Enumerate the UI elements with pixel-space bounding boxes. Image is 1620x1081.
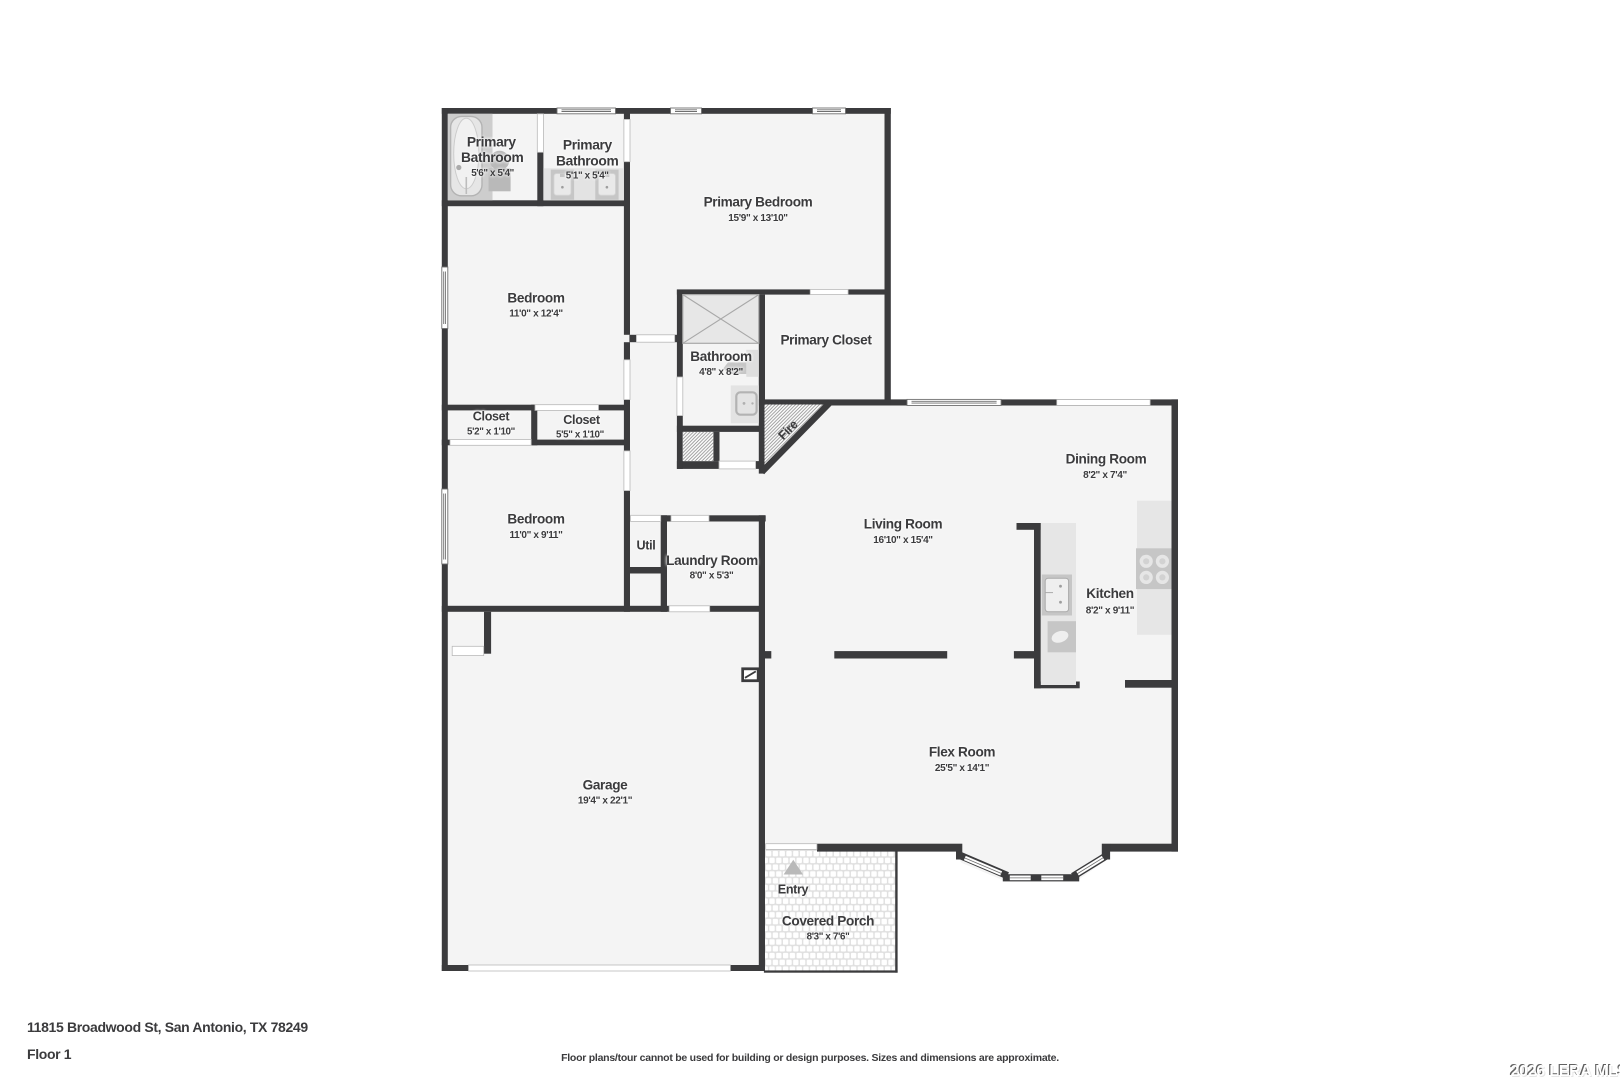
svg-text:Laundry Room: Laundry Room bbox=[666, 553, 758, 568]
svg-text:5'1" x 5'4": 5'1" x 5'4" bbox=[566, 171, 609, 182]
svg-text:5'5" x 1'10": 5'5" x 1'10" bbox=[556, 430, 604, 441]
svg-text:Living Room: Living Room bbox=[864, 517, 943, 532]
svg-text:Bathroom: Bathroom bbox=[690, 349, 752, 364]
svg-text:19'4" x 22'1": 19'4" x 22'1" bbox=[578, 796, 633, 807]
svg-text:8'3" x 7'6": 8'3" x 7'6" bbox=[807, 932, 850, 943]
svg-text:11'0" x 9'11": 11'0" x 9'11" bbox=[509, 530, 563, 541]
svg-text:Primary: Primary bbox=[467, 135, 517, 150]
svg-text:Primary Closet: Primary Closet bbox=[780, 333, 872, 348]
svg-text:15'9" x 13'10": 15'9" x 13'10" bbox=[728, 213, 788, 224]
svg-text:11'0" x 12'4": 11'0" x 12'4" bbox=[509, 309, 563, 320]
svg-text:Bedroom: Bedroom bbox=[507, 291, 564, 306]
svg-text:Dining Room: Dining Room bbox=[1066, 452, 1147, 467]
svg-text:25'5" x 14'1": 25'5" x 14'1" bbox=[935, 763, 990, 774]
svg-text:Bathroom: Bathroom bbox=[461, 150, 523, 165]
svg-text:Bedroom: Bedroom bbox=[507, 512, 564, 527]
svg-text:8'2" x 9'11": 8'2" x 9'11" bbox=[1086, 606, 1135, 617]
svg-text:8'0" x 5'3": 8'0" x 5'3" bbox=[690, 571, 734, 582]
svg-text:5'2" x 1'10": 5'2" x 1'10" bbox=[467, 426, 515, 437]
svg-text:16'10" x 15'4": 16'10" x 15'4" bbox=[873, 535, 933, 546]
svg-text:Util: Util bbox=[637, 538, 656, 552]
svg-text:4'8" x 8'2": 4'8" x 8'2" bbox=[699, 367, 743, 378]
svg-text:Closet: Closet bbox=[473, 410, 511, 424]
svg-text:Primary: Primary bbox=[563, 137, 613, 152]
svg-text:Flex Room: Flex Room bbox=[929, 745, 996, 760]
svg-text:5'6" x 5'4": 5'6" x 5'4" bbox=[471, 168, 514, 179]
svg-text:Primary Bedroom: Primary Bedroom bbox=[704, 194, 813, 209]
svg-text:8'2" x 7'4": 8'2" x 7'4" bbox=[1083, 470, 1127, 481]
svg-text:Entry: Entry bbox=[778, 882, 809, 896]
svg-text:Covered Porch: Covered Porch bbox=[782, 914, 874, 929]
svg-text:Garage: Garage bbox=[583, 778, 629, 793]
svg-text:Bathroom: Bathroom bbox=[556, 154, 618, 169]
svg-text:Kitchen: Kitchen bbox=[1086, 586, 1133, 601]
svg-text:Closet: Closet bbox=[563, 413, 601, 427]
